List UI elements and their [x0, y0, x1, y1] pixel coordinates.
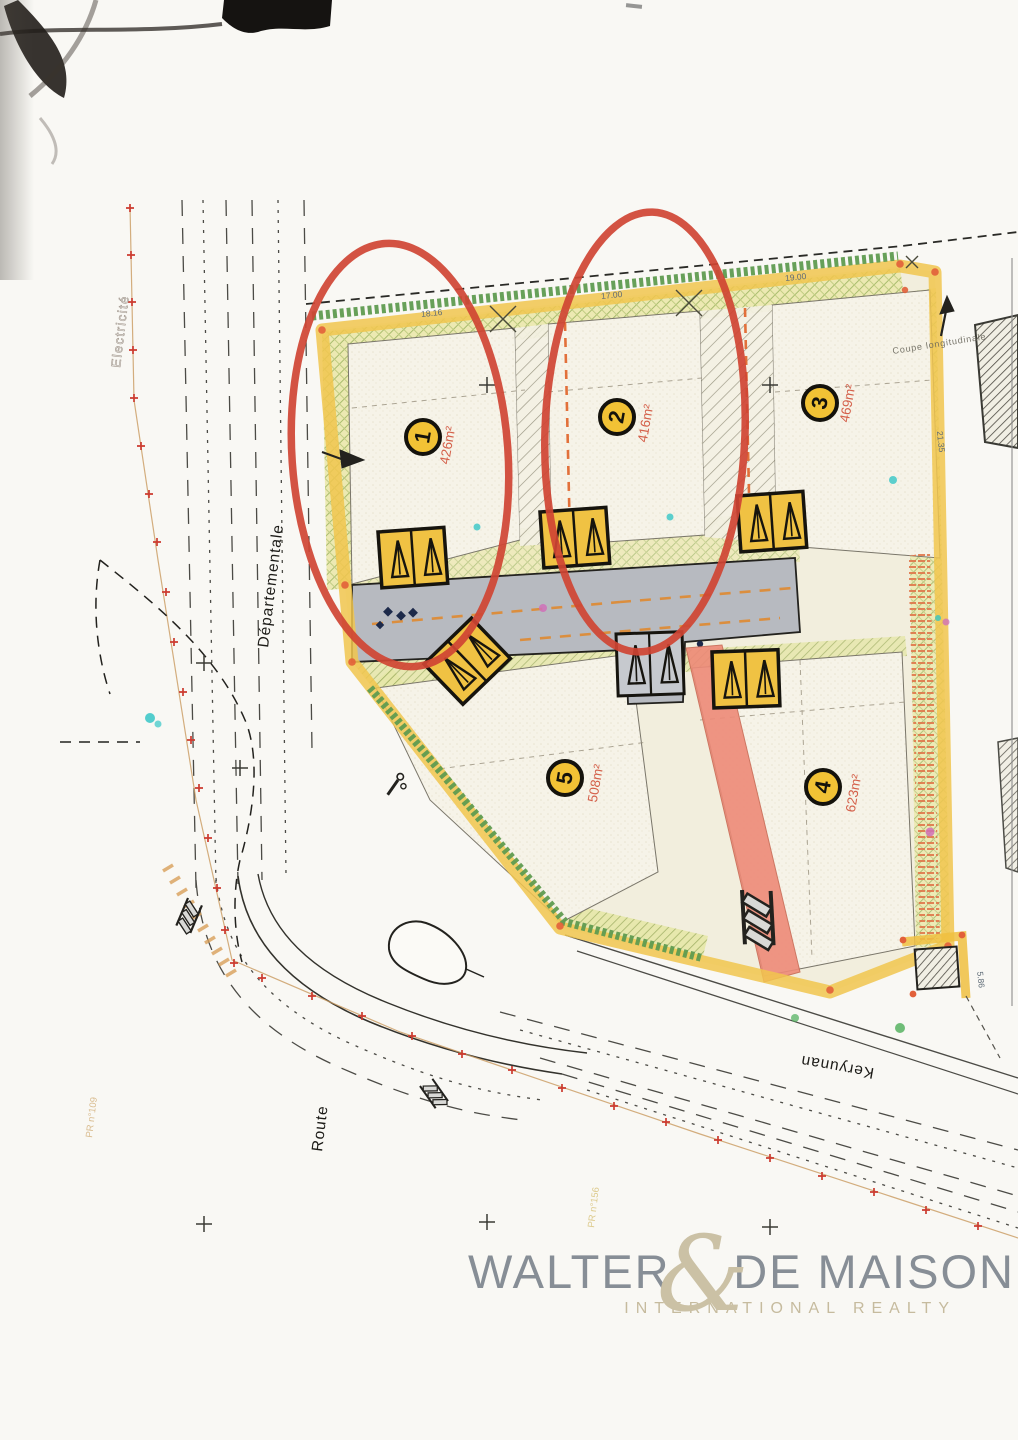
parking-lot4 — [712, 650, 780, 708]
lot-3-badge: 3 — [803, 386, 837, 420]
road-marker-left: PR n°109 — [84, 1097, 100, 1139]
parking-lot1 — [378, 527, 448, 587]
traffic-island — [389, 921, 484, 983]
lot-1-badge: 1 — [406, 420, 440, 454]
lot-4-badge: 4 — [806, 770, 840, 804]
site-plan-drawing: 1 426m² 2 416m² 3 469m² 5 508m² 4 623m² … — [0, 0, 1018, 1440]
parcel-boundary-dashed — [60, 560, 254, 962]
road-marker-bottom: PR n°156 — [586, 1187, 602, 1229]
streetlight-icon — [385, 772, 411, 801]
watermark-name-row: WALTER & DE MAISON — [468, 1244, 958, 1299]
embankment-hatch — [163, 865, 236, 976]
watermark-walter: WALTER — [468, 1244, 671, 1299]
street-label-route: Route — [309, 1104, 332, 1152]
street-label-departementale: Départementale — [255, 523, 287, 648]
scan-artifacts — [0, 0, 642, 280]
existing-building-mid — [998, 738, 1018, 872]
street-label-keryunan: Keryunan — [799, 1052, 875, 1082]
scanned-site-plan-page: 1 426m² 2 416m² 3 469m² 5 508m² 4 623m² … — [0, 0, 1018, 1440]
watermark-de-maison: DE MAISON — [733, 1244, 1015, 1299]
grate-symbol — [419, 1076, 449, 1110]
lot-2-badge: 2 — [600, 400, 634, 434]
lot-5-badge: 5 — [548, 761, 582, 795]
transformer-box — [900, 932, 1000, 1058]
parking-lot3 — [737, 491, 807, 551]
realty-watermark: WALTER & DE MAISON INTERNATIONAL REALTY — [468, 1244, 958, 1344]
utility-line-label: Electricité — [108, 294, 132, 368]
dim-transformer: 5.86 — [975, 971, 987, 989]
